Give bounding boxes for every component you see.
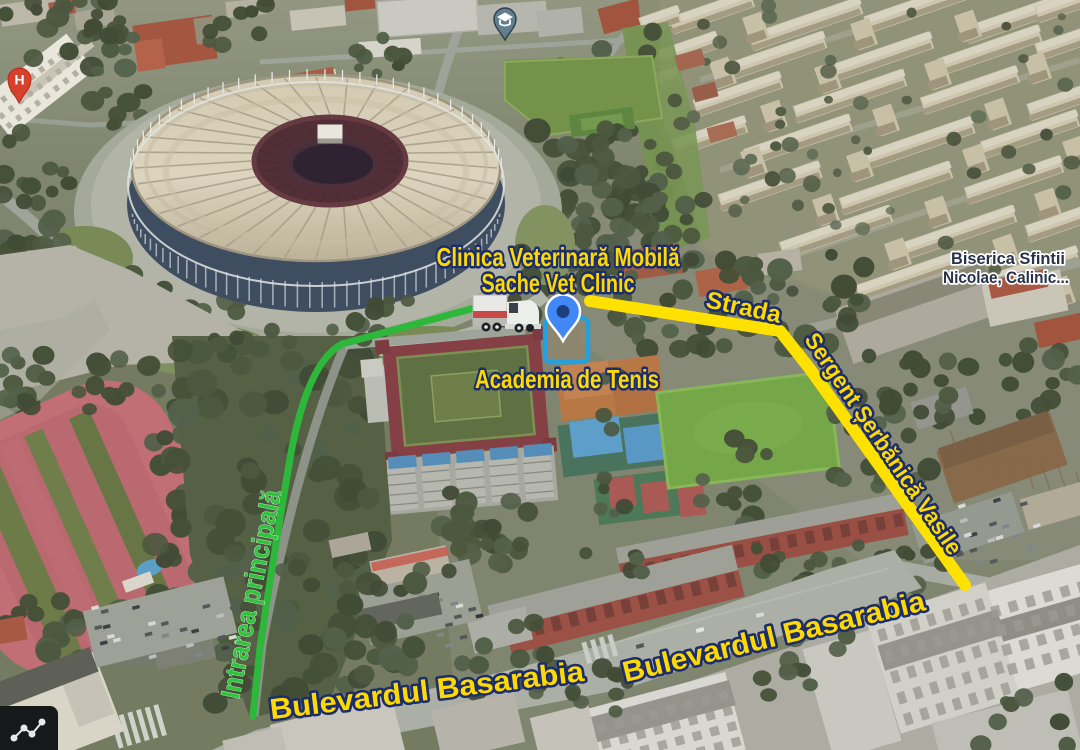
svg-text:Nicolae, Calinic...: Nicolae, Calinic... [943, 268, 1069, 287]
svg-text:Biserica Sfintii: Biserica Sfintii [951, 249, 1065, 268]
svg-text:Academia de Tenis: Academia de Tenis [475, 364, 659, 394]
svg-text:H: H [14, 72, 24, 88]
svg-text:Sache Vet Clinic: Sache Vet Clinic [482, 268, 635, 298]
